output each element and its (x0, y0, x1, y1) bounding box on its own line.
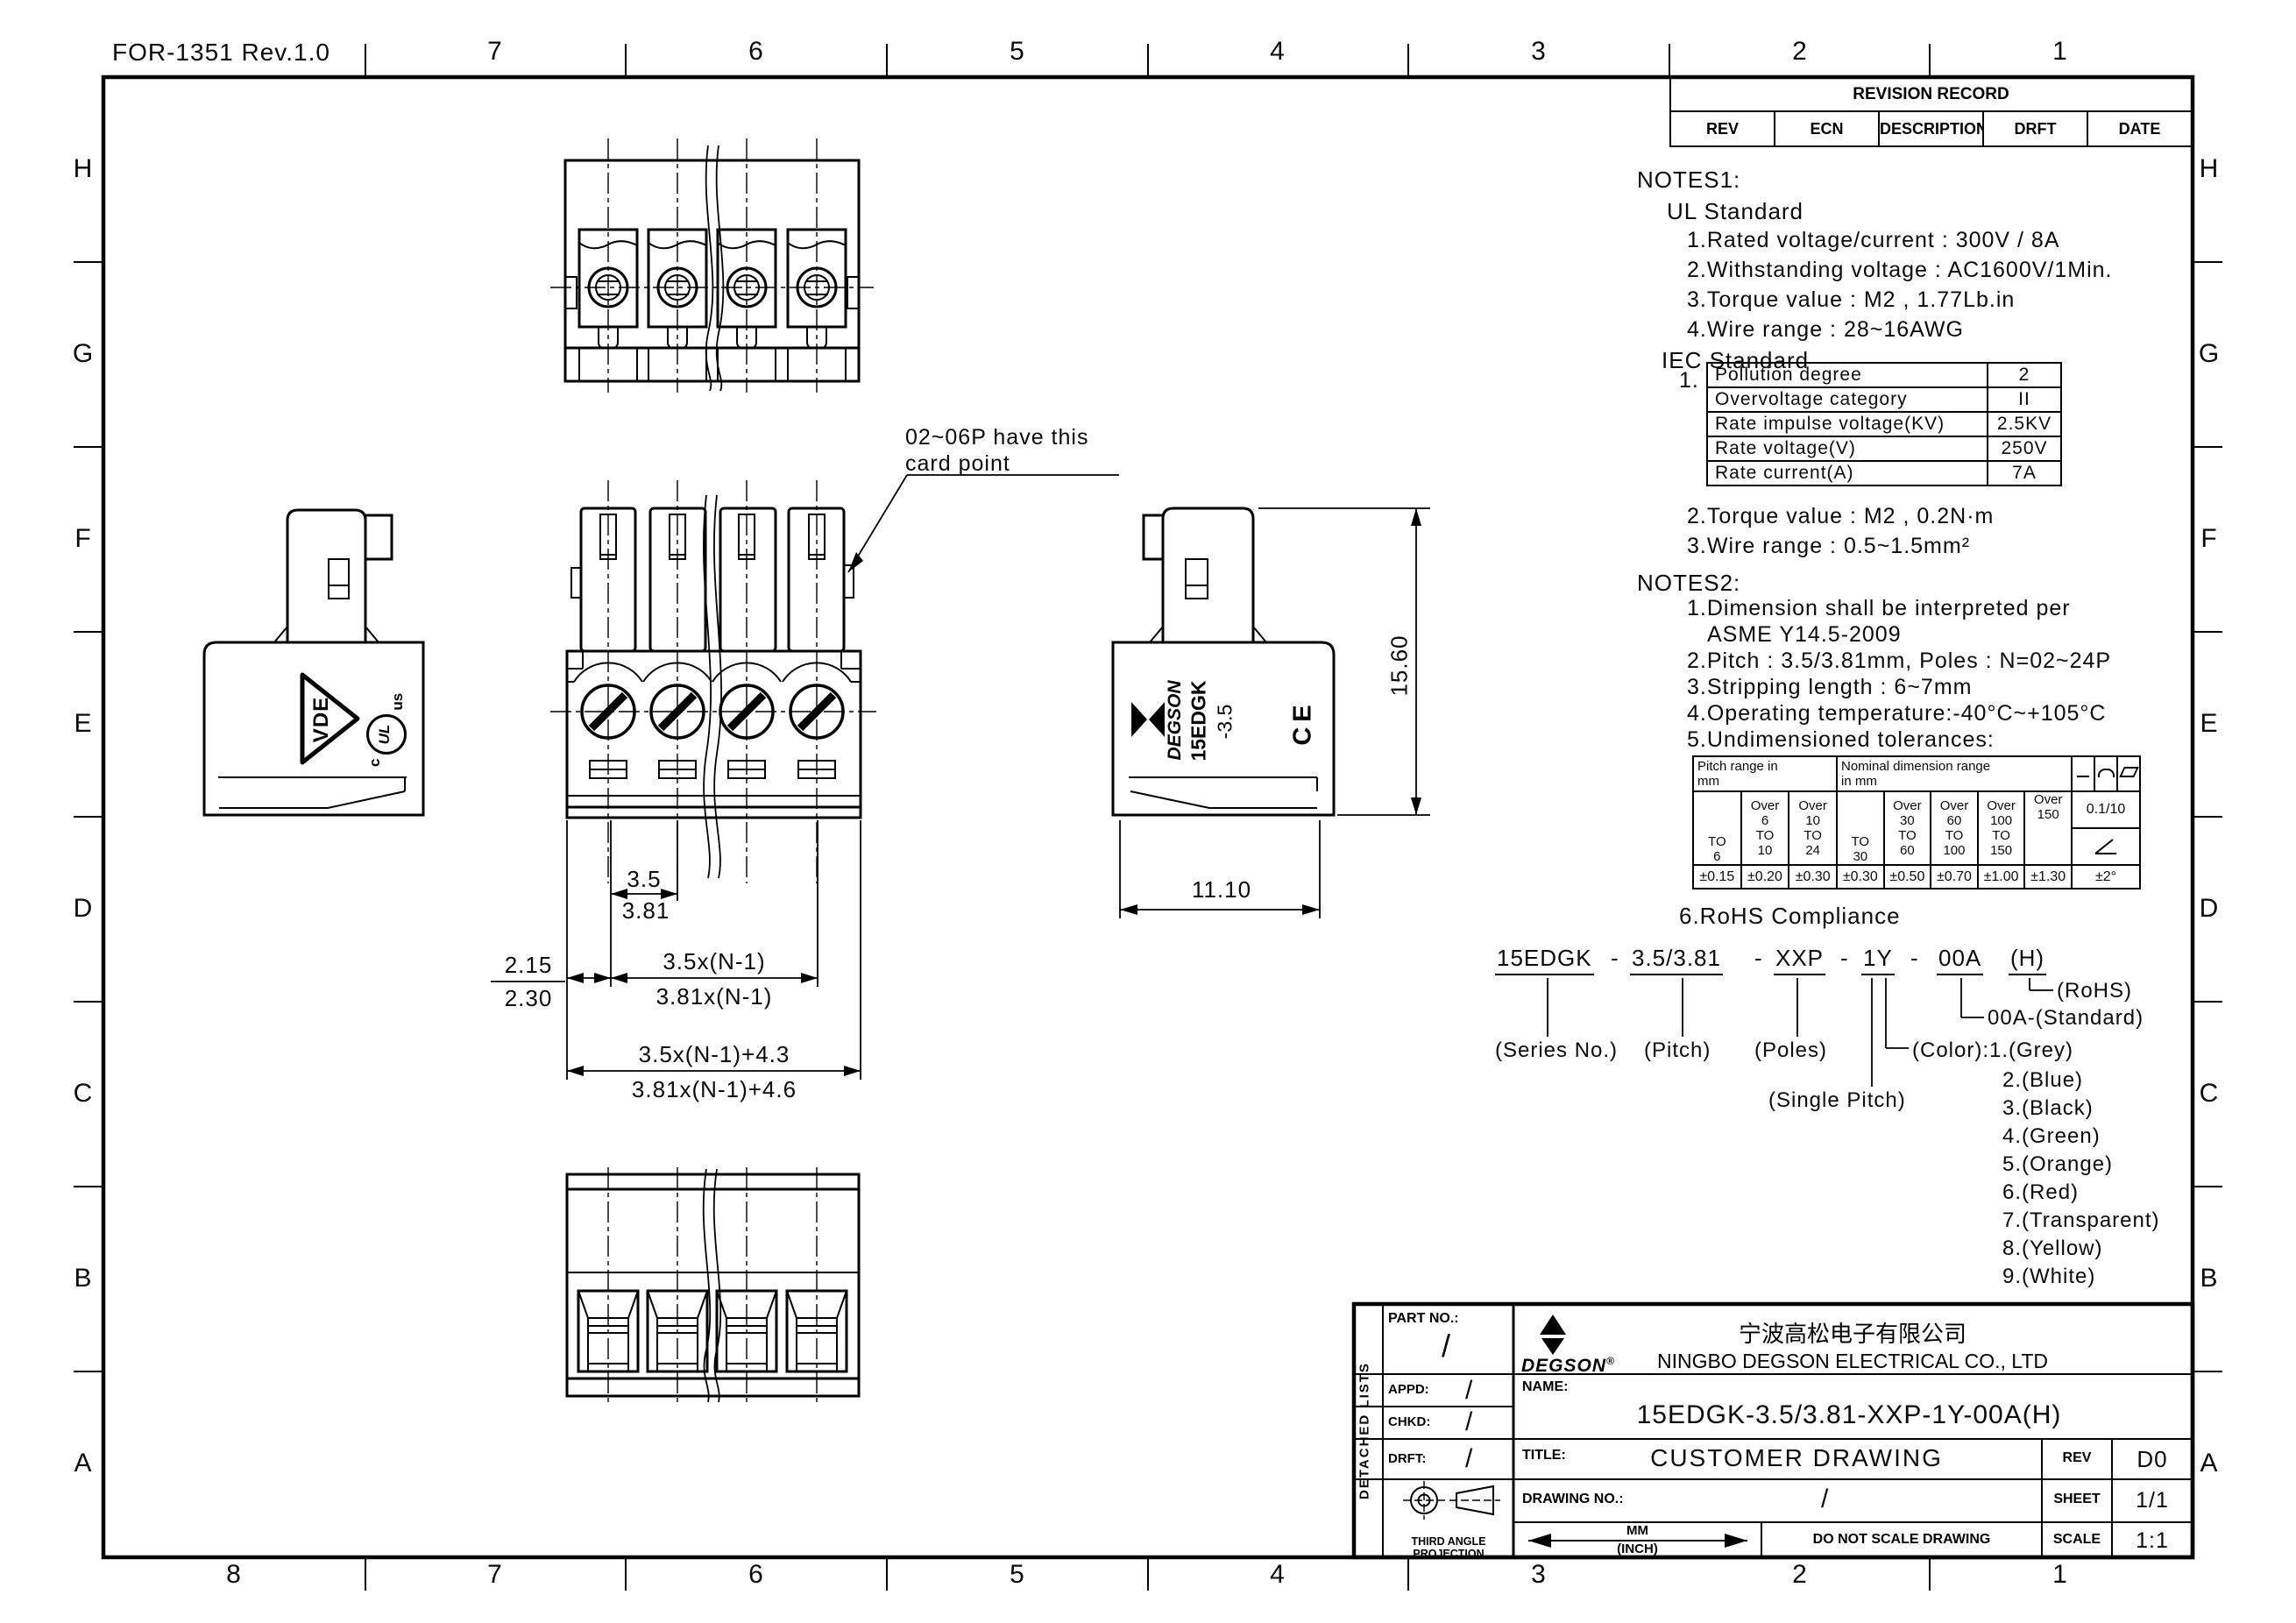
zone-col-top: 5 (1000, 37, 1035, 67)
tol-value: ±0.30 (1837, 865, 1884, 889)
iec-item: 2.Torque value : M2 , 0.2N·m (1687, 504, 1994, 529)
culus-us: us (389, 693, 406, 711)
code-sep: - (1840, 945, 1849, 972)
notes2-title: NOTES2: (1637, 570, 1740, 597)
zone-col-bottom: 1 (2043, 1560, 2078, 1590)
engineering-drawing-sheet: { "sheet": { "form_ref": "FOR-1351 Rev.1… (0, 0, 2296, 1623)
iec-item: 3.Wire range : 0.5~1.5mm² (1687, 534, 1970, 559)
nominal-range-col: TO 30 (1837, 791, 1884, 865)
notes1-title: NOTES1: (1637, 167, 1740, 194)
degson-logo-icon (1540, 1315, 1566, 1355)
part-no-value: / (1442, 1328, 1451, 1364)
iec-value: 2.5KV (1988, 412, 2061, 436)
description-col: DESCRIPTION (1879, 111, 1983, 146)
ul-item: 2.Withstanding voltage : AC1600V/1Min. (1687, 258, 2113, 283)
rohs-label: (RoHS) (2057, 979, 2132, 1003)
model-pitch-mark: -3.5 (1214, 696, 1237, 748)
ul-standard-title: UL Standard (1667, 198, 1803, 225)
zone-col-top: 7 (478, 37, 513, 67)
part-no-label: PART NO.: (1388, 1311, 1459, 1327)
zone-row-left: G (70, 339, 96, 369)
series-label: (Series No.) (1495, 1038, 1618, 1063)
dim-depth: 11.10 (1178, 876, 1265, 904)
zone-row-right: F (2196, 524, 2222, 554)
dim-pitch-mm: 3.5 (609, 866, 679, 893)
degson-mark: DEGSON (1165, 672, 1186, 769)
zone-row-right: D (2196, 894, 2222, 924)
appd-label: APPD: (1388, 1382, 1429, 1397)
tol-value: ±0.70 (1931, 865, 1978, 889)
degson-wordmark: DEGSON (1521, 1356, 1606, 1376)
zone-row-left: F (70, 524, 96, 554)
ratio-cell: 0.1/10 (2073, 792, 2139, 829)
single-pitch-label: (Single Pitch) (1768, 1088, 1906, 1113)
poles-label: (Poles) (1754, 1038, 1827, 1063)
zone-col-bottom: 2 (1782, 1560, 1818, 1590)
scale-label: SCALE (2042, 1532, 2112, 1548)
nominal-range-col: Over 100 TO 150 (1978, 791, 2025, 865)
dim-total-mm: 3.5x(N-1)+4.3 (624, 1041, 804, 1068)
tol-value: ±1.30 (2024, 865, 2072, 889)
zone-row-right: H (2196, 154, 2222, 184)
code-pitch: 3.5/3.81 (1630, 945, 1723, 975)
revision-record-table: REVISION RECORD REV ECN DESCRIPTION DRFT… (1669, 77, 2193, 147)
card-point-note-line1: 02~06P have this (905, 425, 1088, 450)
zone-col-bottom: 8 (216, 1560, 252, 1590)
color-option: 8.(Yellow) (2002, 1237, 2103, 1261)
color-option: 7.(Transparent) (2002, 1208, 2160, 1233)
nominal-range-header: Nominal dimension range in mm (1837, 756, 2072, 791)
drawing-no-value: / (1821, 1485, 1829, 1514)
color-option: 4.(Green) (2002, 1124, 2101, 1149)
card-point-note-line2: card point (905, 451, 1010, 477)
chkd-value: / (1465, 1407, 1473, 1437)
notes2-item: 4.Operating temperature:-40°C~+105°C (1687, 701, 2106, 726)
notes2-item: 5.Undimensioned tolerances: (1687, 727, 1995, 753)
pitch-range-col: Over 10 TO 24 (1789, 791, 1837, 865)
iec-value: II (1988, 387, 2061, 412)
zone-row-left: B (70, 1264, 96, 1293)
model-mark: 15EDGK (1187, 673, 1211, 769)
dim-pitch-alt: 3.81 (609, 897, 683, 925)
title-value: CUSTOMER DRAWING (1621, 1444, 1972, 1472)
name-label: NAME: (1522, 1379, 1568, 1395)
zone-col-bottom: 4 (1260, 1560, 1295, 1590)
zone-row-right: G (2196, 339, 2222, 369)
code-sep: - (1611, 945, 1619, 972)
iec-param: Overvoltage category (1707, 387, 1988, 412)
zone-row-right: C (2196, 1079, 2222, 1109)
iec-value: 250V (1988, 436, 2061, 461)
pitch-range-col: TO 6 (1693, 791, 1741, 865)
dim-span-mm: 3.5x(N-1) (627, 948, 802, 975)
notes2-item: 1.Dimension shall be interpreted per (1687, 596, 2071, 621)
zone-col-top: 1 (2043, 37, 2078, 67)
color-option: 6.(Red) (2002, 1180, 2079, 1205)
drft-col: DRFT (1983, 111, 2087, 146)
ul-logo-icon: UL (366, 714, 407, 755)
tol-value: ±0.30 (1789, 865, 1837, 889)
zone-row-left: H (70, 154, 96, 184)
left-side-view (204, 510, 423, 815)
iec-value: 7A (1988, 461, 2061, 485)
dim-depth-lines (1120, 820, 1320, 918)
projection-label: THIRD ANGLE PROJECTION (1385, 1535, 1513, 1560)
appd-value: / (1465, 1376, 1473, 1406)
pitch-label: (Pitch) (1644, 1038, 1711, 1063)
color-label: (Color):1.(Grey) (1912, 1038, 2073, 1063)
tol-angle-value: ±2° (2072, 865, 2140, 889)
scale-value: 1:1 (2112, 1528, 2193, 1554)
nominal-range-col: Over 150 (2024, 791, 2072, 865)
code-single-pitch: 1Y (1861, 945, 1895, 975)
zone-row-right: E (2196, 709, 2222, 739)
straightness-icon (2072, 756, 2094, 791)
detached-lists-label: DETACHED LISTS (1357, 1326, 1379, 1536)
color-option: 2.(Blue) (2002, 1068, 2083, 1093)
company-name-cn: 宁波高松电子有限公司 (1633, 1316, 2072, 1349)
rev-label: REV (2042, 1450, 2112, 1466)
iec-value: 2 (1988, 363, 2061, 387)
zone-row-left: D (70, 894, 96, 924)
rohs-note: 6.RoHS Compliance (1679, 903, 1901, 930)
iec-param: Pollution degree (1707, 363, 1988, 387)
color-option: 3.(Black) (2002, 1096, 2094, 1121)
dim-edge-mm: 2.15 (491, 952, 566, 979)
rev-col: REV (1670, 111, 1775, 146)
ul-item: 3.Torque value : M2 , 1.77Lb.in (1687, 287, 2015, 313)
nominal-range-col: Over 30 TO 60 (1884, 791, 1931, 865)
ul-item: 4.Wire range : 28~16AWG (1687, 317, 1964, 343)
pitch-range-col: Over 6 TO 10 (1741, 791, 1789, 865)
top-view (550, 138, 874, 393)
dim-height: 15.60 (1386, 622, 1414, 710)
notes2-item: 2.Pitch : 3.5/3.81mm, Poles : N=02~24P (1687, 648, 2111, 674)
third-angle-projection-icon (1403, 1481, 1500, 1520)
tol-value: ±0.20 (1741, 865, 1789, 889)
form-reference: FOR-1351 Rev.1.0 (112, 39, 330, 67)
front-view (550, 480, 876, 883)
notes2-item: 3.Stripping length : 6~7mm (1687, 675, 1972, 700)
ul-item: 1.Rated voltage/current : 300V / 8A (1687, 228, 2060, 253)
zone-col-bottom: 6 (739, 1560, 774, 1590)
code-series: 15EDGK (1495, 945, 1594, 975)
part-name-value: 15EDGK-3.5/3.81-XXP-1Y-00A(H) (1560, 1400, 2138, 1430)
code-color: 00A (1937, 945, 1983, 975)
dim-edge-alt: 2.30 (491, 985, 566, 1012)
tol-value: ±0.50 (1884, 865, 1931, 889)
iec-table: Pollution degree 2 Overvoltage category … (1706, 362, 2062, 486)
code-sep: - (1910, 945, 1919, 972)
standard-label: 00A-(Standard) (1988, 1006, 2144, 1031)
ecn-col: ECN (1775, 111, 1879, 146)
bottom-view (567, 1167, 859, 1405)
drft-value: / (1465, 1444, 1473, 1474)
arc-icon (2094, 756, 2117, 791)
revision-record-title: REVISION RECORD (1670, 78, 2192, 111)
dim-total-alt: 3.81x(N-1)+4.6 (621, 1076, 807, 1103)
zone-col-bottom: 7 (478, 1560, 513, 1590)
zone-col-bottom: 5 (1000, 1560, 1035, 1590)
zone-row-right: A (2196, 1449, 2222, 1478)
company-name-en: NINGBO DEGSON ELECTRICAL CO., LTD (1598, 1350, 2107, 1373)
tol-value: ±1.00 (1978, 865, 2025, 889)
culus-mark: c UL us (366, 670, 410, 767)
nominal-range-col: Over 60 TO 100 (1931, 791, 1978, 865)
zone-row-right: B (2196, 1264, 2222, 1293)
degson-logo-icon (1149, 702, 1165, 737)
degson-logo-icon (1131, 702, 1147, 737)
color-option: 9.(White) (2002, 1265, 2095, 1289)
tol-value: ±0.15 (1693, 865, 1741, 889)
units-mm-label: MM (1513, 1523, 1761, 1538)
iec-param: Rate current(A) (1707, 461, 1988, 485)
chkd-label: CHKD: (1388, 1414, 1430, 1429)
iec-param: Rate impulse voltage(KV) (1707, 412, 1988, 436)
zone-row-left: C (70, 1079, 96, 1109)
do-not-scale-label: DO NOT SCALE DRAWING (1761, 1532, 2042, 1548)
drawing-no-label: DRAWING NO.: (1522, 1492, 1624, 1507)
code-rohs: (H) (2009, 945, 2046, 975)
right-side-view (1113, 508, 1334, 815)
zone-col-bottom: 3 (1521, 1560, 1556, 1590)
drft-label: DRFT: (1388, 1451, 1426, 1466)
code-sep: - (1754, 945, 1763, 972)
rev-value: D0 (2112, 1446, 2193, 1473)
zone-row-left: A (70, 1449, 96, 1478)
sheet-value: 1/1 (2112, 1488, 2193, 1513)
ce-mark: CE (1289, 697, 1318, 749)
notes2-item: ASME Y14.5-2009 (1707, 622, 1902, 648)
dim-span-alt: 3.81x(N-1) (624, 983, 804, 1010)
pitch-range-header: Pitch range in mm (1693, 756, 1837, 791)
ordering-tree-lines (1548, 978, 2053, 1087)
sheet-label: SHEET (2042, 1492, 2112, 1507)
zone-col-top: 2 (1782, 37, 1818, 67)
date-col: DATE (2087, 111, 2192, 146)
zone-col-top: 3 (1521, 37, 1556, 67)
zone-col-top: 6 (739, 37, 774, 67)
flatness-icon (2117, 756, 2140, 791)
code-poles: XXP (1774, 945, 1825, 975)
angularity-icon (2073, 829, 2139, 864)
units-inch-label: (INCH) (1513, 1541, 1761, 1556)
color-option: 5.(Orange) (2002, 1152, 2113, 1177)
iec-param: Rate voltage(V) (1707, 436, 1988, 461)
card-point-leader (848, 475, 1119, 572)
vde-mark: VDE (309, 689, 334, 750)
tolerance-table: Pitch range in mm Nominal dimension rang… (1692, 755, 2141, 889)
zone-col-top: 4 (1260, 37, 1295, 67)
culus-c: c (366, 759, 383, 767)
iec-item-number: 1. (1679, 368, 1699, 393)
title-label: TITLE: (1522, 1448, 1566, 1464)
zone-row-left: E (70, 709, 96, 739)
